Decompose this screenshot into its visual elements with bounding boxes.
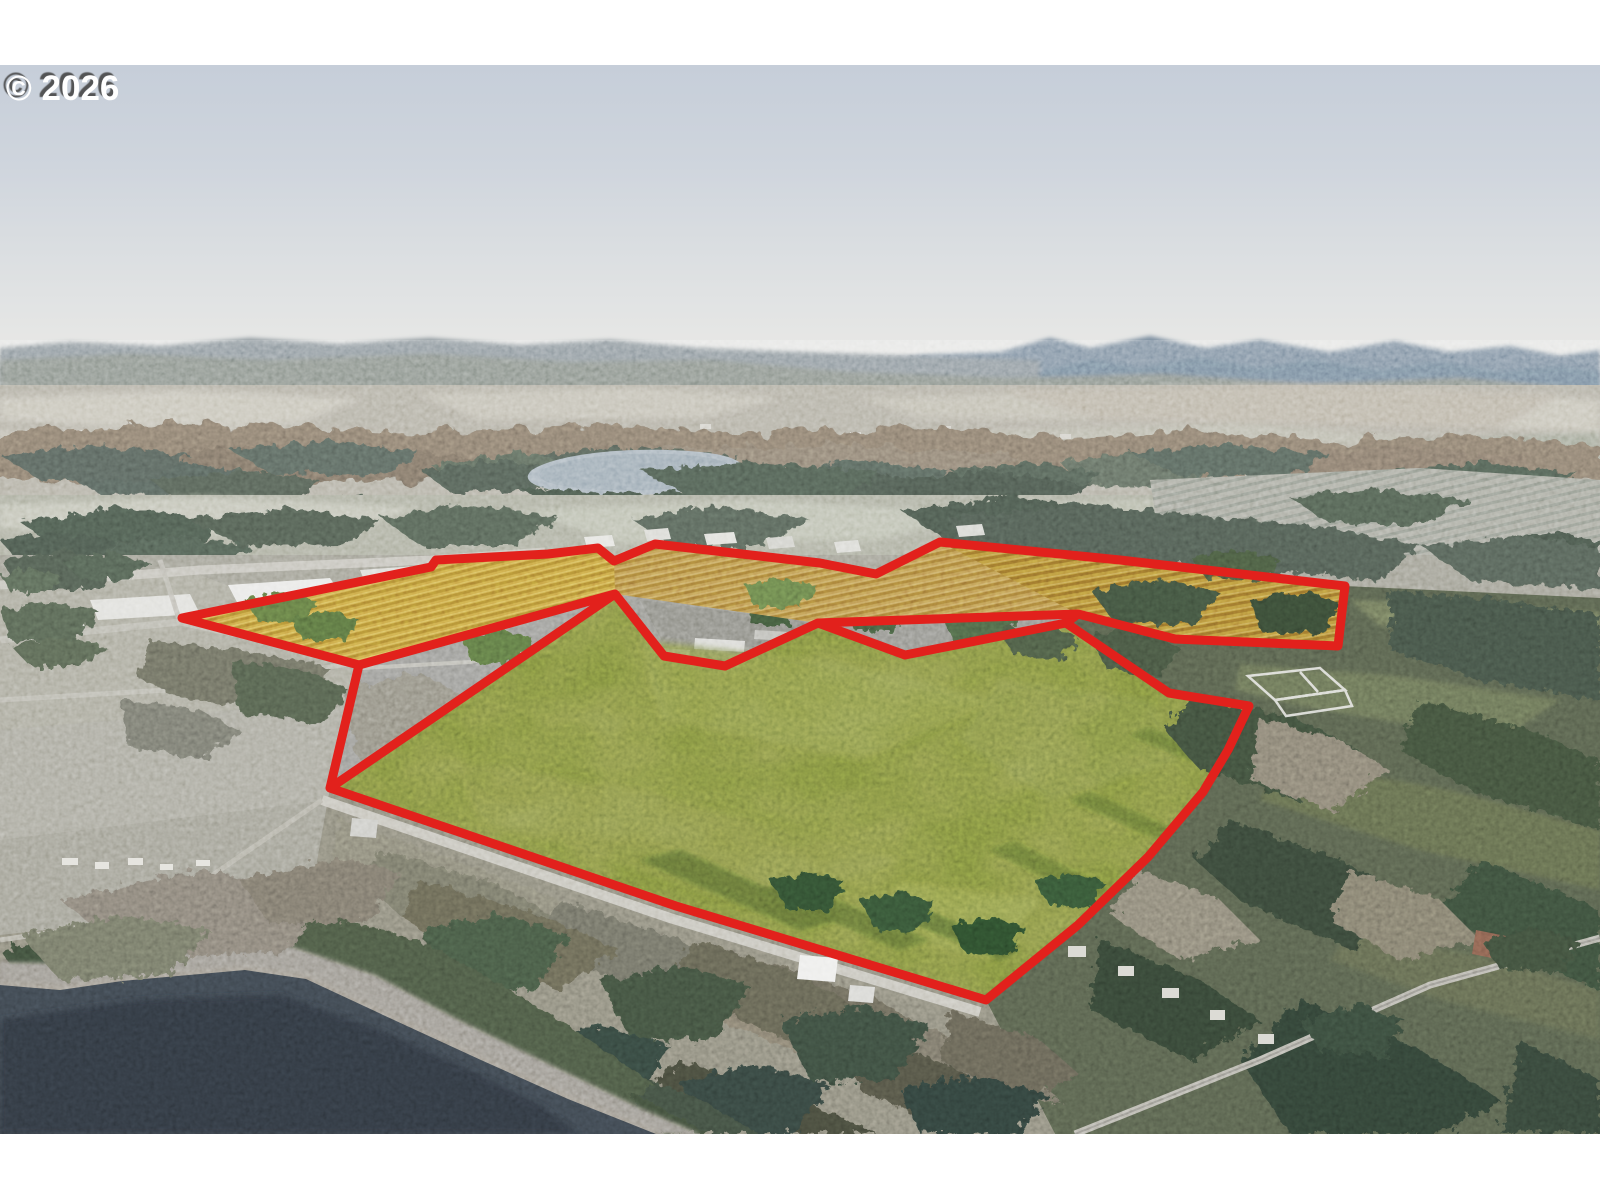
svg-text:© 2026: © 2026 bbox=[6, 69, 119, 108]
